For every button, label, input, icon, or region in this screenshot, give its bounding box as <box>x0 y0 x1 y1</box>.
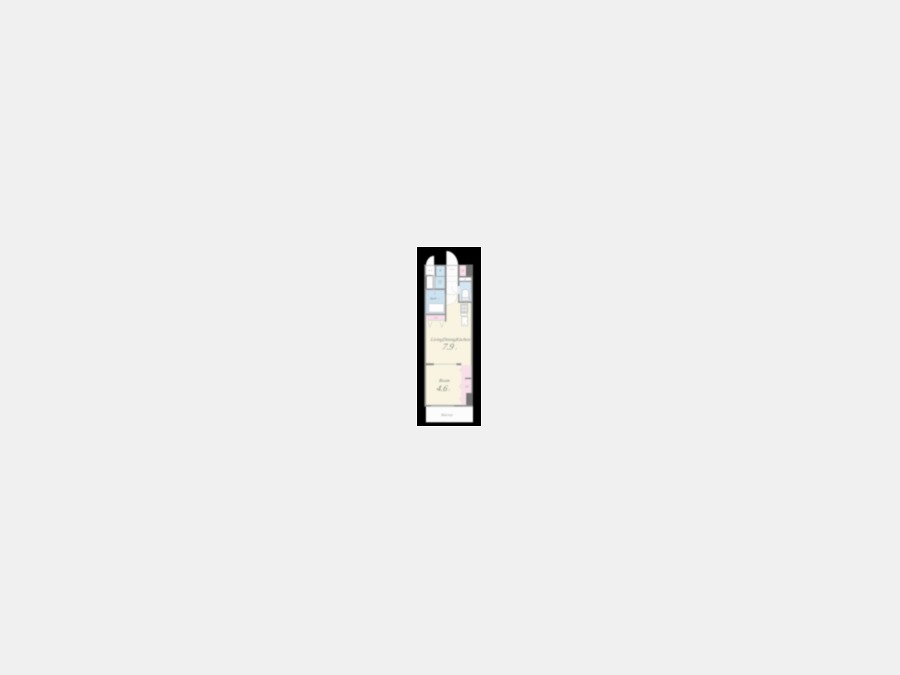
svg-text:Bath: Bath <box>429 296 436 300</box>
svg-text:Balcony: Balcony <box>440 412 453 416</box>
